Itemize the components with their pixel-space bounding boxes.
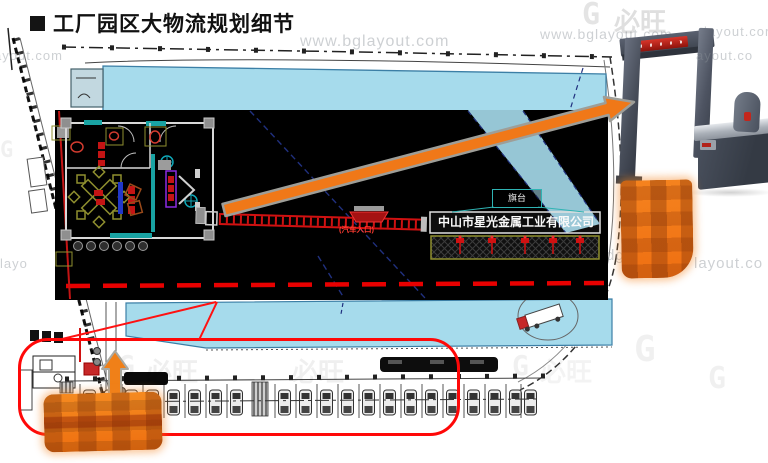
- callout-leader-lines: [62, 302, 217, 340]
- flag-wall: [431, 236, 599, 260]
- company-name-label: 中山市星光金属工业有限公司: [432, 214, 600, 231]
- brand-logo-icon: G: [634, 332, 656, 368]
- callout-arrow-icon: [223, 97, 635, 216]
- scanner-logo-icon: [702, 143, 711, 147]
- inset-guide-lines: [250, 110, 600, 298]
- flag-icon: [488, 236, 496, 255]
- flag-icon: [549, 236, 557, 255]
- brand-logo-icon: G: [708, 364, 726, 394]
- watermark-url-fragment: ayout.co: [696, 48, 753, 63]
- bullet-square-icon: [30, 16, 45, 31]
- brand-logo-icon: G: [0, 140, 13, 162]
- building-block-top: [71, 66, 606, 112]
- scanner-shadow: [686, 188, 768, 197]
- room-label-marks: [98, 142, 174, 214]
- chairs-row: [74, 242, 148, 251]
- security-scanner-photo: [610, 16, 768, 194]
- retractable-gate: [196, 207, 427, 231]
- guard-house-plan: [61, 118, 214, 251]
- brand-name-watermark: 必旺: [540, 352, 592, 389]
- car-entrance-barrier: [350, 206, 388, 222]
- brand-logo-icon: G: [512, 352, 529, 380]
- inset-left-fence-line: [52, 111, 72, 299]
- truck-icon: [516, 292, 578, 340]
- watermark-url-fragment: layout.co: [694, 255, 763, 272]
- car-entrance-label: (汽车入口): [339, 224, 374, 235]
- flag-icon: [576, 236, 584, 255]
- meeting-table: [68, 166, 129, 227]
- slide-canvas: www.bglayout.com ayout.com www.bglayout.…: [0, 0, 768, 463]
- slide-title: 工厂园区大物流规划细节: [30, 8, 295, 38]
- redacted-block-left: [43, 391, 162, 452]
- flag-platform-label: 旗台: [492, 189, 542, 208]
- watermark-url-fragment: ayout.com: [0, 48, 63, 63]
- flag-icon: [521, 236, 529, 255]
- watermark-url: www.bglayout.com: [300, 33, 449, 51]
- flag-icon: [456, 236, 464, 255]
- page-title: 工厂园区大物流规划细节: [53, 8, 295, 38]
- inset-red-boundary-line: [66, 283, 604, 286]
- watermark-url-fragment: layo: [0, 256, 28, 271]
- redacted-block-right: [620, 179, 694, 278]
- scanner-logo-icon: [744, 112, 751, 121]
- brand-logo-icon: G: [582, 0, 600, 30]
